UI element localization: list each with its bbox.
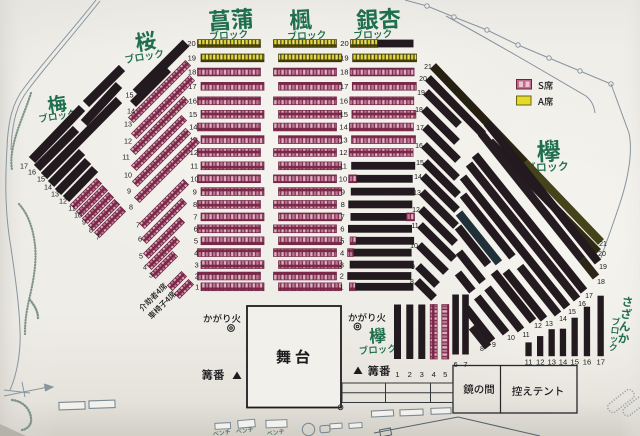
svg-text:14: 14 bbox=[189, 123, 197, 132]
svg-text:19: 19 bbox=[340, 54, 348, 63]
svg-text:18: 18 bbox=[340, 68, 348, 77]
svg-text:8: 8 bbox=[129, 203, 133, 212]
svg-text:4: 4 bbox=[194, 248, 198, 257]
svg-text:9: 9 bbox=[411, 264, 415, 271]
svg-text:9: 9 bbox=[127, 187, 131, 196]
svg-text:8: 8 bbox=[480, 346, 484, 353]
svg-text:6: 6 bbox=[138, 235, 142, 244]
svg-text:20: 20 bbox=[598, 251, 606, 258]
svg-text:4: 4 bbox=[432, 370, 436, 379]
svg-text:5: 5 bbox=[340, 237, 344, 246]
svg-text:4: 4 bbox=[143, 263, 147, 272]
svg-text:10: 10 bbox=[124, 171, 132, 180]
svg-text:17: 17 bbox=[585, 293, 593, 300]
svg-text:13: 13 bbox=[124, 120, 132, 129]
svg-text:15: 15 bbox=[568, 309, 576, 316]
svg-text:14: 14 bbox=[414, 174, 422, 181]
svg-text:1: 1 bbox=[395, 370, 399, 379]
svg-text:12: 12 bbox=[339, 148, 347, 157]
svg-text:18: 18 bbox=[415, 107, 423, 114]
svg-text:10: 10 bbox=[339, 175, 347, 184]
svg-text:17: 17 bbox=[416, 125, 424, 132]
svg-text:11: 11 bbox=[339, 162, 347, 171]
svg-text:8: 8 bbox=[89, 226, 93, 235]
svg-text:15: 15 bbox=[189, 110, 197, 119]
svg-text:3: 3 bbox=[340, 260, 344, 269]
svg-text:20: 20 bbox=[340, 39, 348, 48]
svg-text:13: 13 bbox=[51, 190, 59, 199]
svg-text:7: 7 bbox=[340, 213, 344, 222]
svg-text:1: 1 bbox=[195, 283, 199, 292]
svg-text:16: 16 bbox=[188, 97, 196, 106]
svg-text:16: 16 bbox=[340, 97, 348, 106]
svg-text:11: 11 bbox=[190, 162, 198, 171]
svg-text:13: 13 bbox=[413, 190, 421, 197]
svg-text:16: 16 bbox=[415, 143, 423, 150]
svg-text:3: 3 bbox=[420, 370, 424, 379]
svg-text:9: 9 bbox=[193, 187, 197, 196]
svg-text:2: 2 bbox=[340, 272, 344, 281]
svg-text:14: 14 bbox=[559, 316, 567, 323]
svg-text:3: 3 bbox=[149, 271, 153, 280]
svg-text:7: 7 bbox=[96, 233, 100, 242]
svg-text:15: 15 bbox=[340, 110, 348, 119]
svg-text:21: 21 bbox=[599, 241, 607, 248]
svg-text:12: 12 bbox=[412, 207, 420, 214]
svg-text:2: 2 bbox=[408, 370, 412, 379]
svg-text:15: 15 bbox=[416, 160, 424, 167]
svg-text:11: 11 bbox=[122, 153, 129, 162]
svg-text:19: 19 bbox=[417, 90, 425, 97]
svg-text:3: 3 bbox=[194, 260, 198, 269]
svg-text:17: 17 bbox=[340, 82, 348, 91]
svg-text:11: 11 bbox=[411, 223, 418, 230]
svg-text:13: 13 bbox=[339, 135, 347, 144]
svg-text:7: 7 bbox=[136, 221, 140, 230]
svg-text:6: 6 bbox=[453, 360, 457, 369]
svg-text:10: 10 bbox=[507, 335, 515, 342]
svg-text:2: 2 bbox=[195, 272, 199, 281]
svg-text:10: 10 bbox=[410, 243, 418, 250]
svg-text:9: 9 bbox=[341, 187, 345, 196]
svg-text:5: 5 bbox=[443, 370, 447, 379]
svg-text:10: 10 bbox=[74, 211, 82, 220]
svg-text:10: 10 bbox=[190, 175, 198, 184]
svg-text:9: 9 bbox=[82, 218, 86, 227]
svg-text:18: 18 bbox=[597, 279, 605, 286]
svg-text:19: 19 bbox=[599, 264, 607, 271]
svg-text:8: 8 bbox=[193, 200, 197, 209]
svg-text:6: 6 bbox=[194, 225, 198, 234]
svg-text:7: 7 bbox=[463, 360, 467, 369]
svg-text:17: 17 bbox=[20, 162, 28, 171]
svg-text:12: 12 bbox=[124, 137, 132, 146]
svg-text:1: 1 bbox=[339, 283, 343, 292]
svg-text:17: 17 bbox=[596, 358, 604, 367]
svg-text:12: 12 bbox=[59, 197, 67, 206]
svg-text:11: 11 bbox=[522, 332, 529, 339]
svg-text:4: 4 bbox=[340, 248, 344, 257]
svg-text:16: 16 bbox=[583, 358, 591, 367]
svg-text:12: 12 bbox=[534, 323, 542, 330]
svg-text:5: 5 bbox=[139, 252, 143, 261]
svg-text:7: 7 bbox=[193, 213, 197, 222]
svg-text:8: 8 bbox=[341, 200, 345, 209]
svg-text:19: 19 bbox=[188, 54, 196, 63]
svg-text:16: 16 bbox=[28, 168, 36, 177]
svg-text:8: 8 bbox=[410, 279, 414, 286]
svg-text:14: 14 bbox=[339, 123, 347, 132]
svg-text:9: 9 bbox=[492, 342, 496, 349]
svg-text:6: 6 bbox=[340, 225, 344, 234]
svg-text:20: 20 bbox=[419, 76, 427, 83]
svg-text:5: 5 bbox=[194, 237, 198, 246]
svg-text:13: 13 bbox=[545, 321, 553, 328]
svg-text:21: 21 bbox=[424, 64, 432, 71]
svg-text:15: 15 bbox=[126, 91, 134, 100]
svg-text:14: 14 bbox=[127, 107, 135, 116]
